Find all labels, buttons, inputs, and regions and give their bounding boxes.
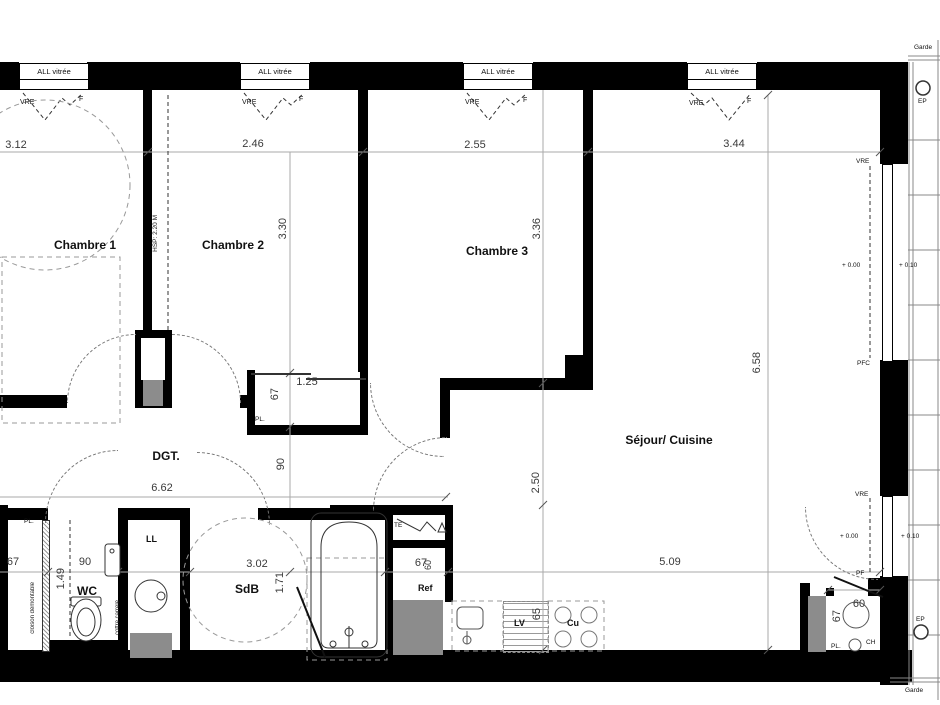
pl-label-closet: PL.: [255, 416, 265, 423]
dim-sdb-width: 3.02: [246, 558, 267, 570]
hand-basin: [105, 544, 120, 576]
room-label-sdb: SdB: [235, 582, 259, 596]
f-label-w4: F: [747, 98, 751, 105]
dim-wc-width: 90: [79, 556, 91, 568]
cloison-note: cloison démontable: [30, 582, 36, 634]
level-inside-1: + 0.00: [842, 262, 860, 269]
level-outside-2: + 0.10: [901, 533, 919, 540]
floor-plan: ALL vitrée ALL vitrée ALL vitrée ALL vit…: [0, 0, 940, 705]
dim-ch1-width: 3.12: [5, 139, 26, 151]
balcony-lines: [890, 40, 940, 700]
level-inside-2: + 0.00: [840, 533, 858, 540]
room-label-chambre2: Chambre 2: [202, 238, 264, 252]
ep-label-bottom: EP: [916, 616, 925, 623]
bathtub: [311, 513, 387, 657]
f-label-w2: F: [299, 96, 303, 103]
f-label-w1: F: [79, 96, 83, 103]
dim-closet-width: 1.25: [296, 376, 317, 388]
dim-kitchen-width: 5.09: [659, 556, 680, 568]
pfc-label: PFC: [857, 360, 870, 367]
vre-label-w4: VRE: [689, 100, 703, 107]
cu-label: Cu: [567, 618, 579, 628]
dim-lv-depth: 65: [531, 608, 543, 620]
dim-ch-width: 60: [853, 598, 865, 610]
vre-label-w1: VRE: [20, 99, 34, 106]
dim-ch2-width: 2.46: [242, 138, 263, 150]
dim-wc-length: 1.49: [55, 568, 67, 589]
ll-label: LL: [146, 534, 157, 544]
dim-sejour-depth: 2.50: [530, 472, 542, 493]
dim-closet-front: 90: [275, 458, 287, 470]
room-label-chambre3: Chambre 3: [466, 244, 528, 258]
vre-label-w3: VRE: [465, 99, 479, 106]
dim-corridor-width: 6.62: [151, 482, 172, 494]
door-leaves: [297, 577, 883, 657]
dim-sejour-height: 6.58: [751, 352, 763, 373]
room-label-sejour: Séjour/ Cuisine: [625, 433, 712, 447]
toilet: [71, 597, 101, 641]
vre-label-pf: VRE: [855, 491, 868, 498]
ep-label-top: EP: [918, 98, 927, 105]
hsp-note: HSP: 2.20 M: [152, 215, 159, 252]
dim-sejour-width: 3.44: [723, 138, 744, 150]
dim-sdb-length: 1.71: [274, 572, 286, 593]
lv-label: LV: [514, 618, 525, 628]
te-label: TE: [394, 522, 402, 529]
dim-ch3-height: 3.36: [531, 218, 543, 239]
dim-ch2-height: 3.30: [277, 218, 289, 239]
ch-label: CH: [866, 639, 875, 646]
room-label-wc: WC: [77, 584, 97, 598]
vre-label-w2: VRE: [242, 99, 256, 106]
room-label-chambre1: Chambre 1: [54, 238, 116, 252]
dim-closet-depth: 67: [269, 388, 281, 400]
coffre-note: coffre carrelé: [115, 600, 121, 635]
kitchen-sink: [457, 607, 483, 644]
dim-ref-depth: 60: [423, 560, 433, 570]
room-label-dgt: DGT.: [152, 449, 179, 463]
garde-label-bottom: Garde: [905, 687, 923, 694]
pl-label-ch: PL.: [831, 643, 841, 650]
dim-ch3-width: 2.55: [464, 139, 485, 151]
f-label-w3: F: [523, 97, 527, 104]
pl-label-left: PL.: [24, 518, 34, 525]
dim-left-closet-width: 67: [7, 556, 19, 568]
garde-label-top: Garde: [914, 44, 932, 51]
washbasin: [135, 580, 167, 612]
dim-ch-depth: 67: [831, 610, 843, 622]
window-swing-symbols: [23, 93, 870, 638]
dimension-lines: [0, 90, 880, 650]
vre-label-pfc: VRE: [856, 158, 869, 165]
ref-label: Ref: [418, 583, 433, 593]
level-outside-1: + 0.10: [899, 262, 917, 269]
electric-panel-icon: [397, 519, 446, 532]
pf-label: PF: [856, 570, 864, 577]
